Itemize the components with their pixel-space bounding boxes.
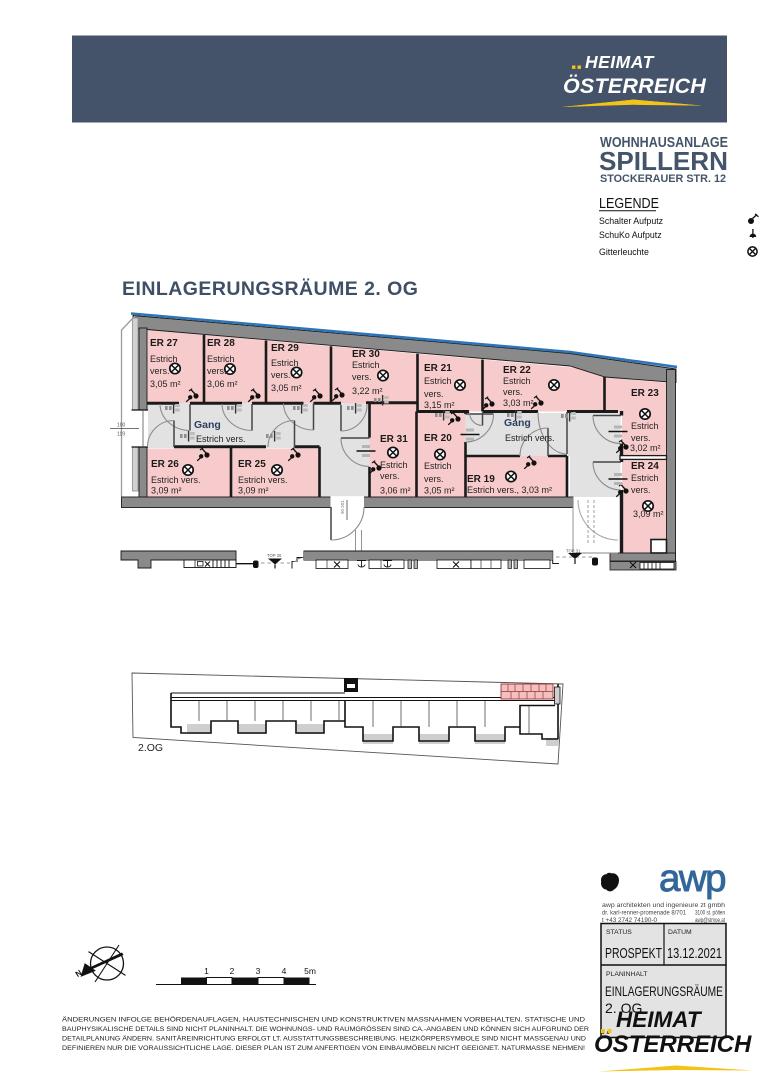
svg-text:Estrich: Estrich (271, 358, 299, 368)
svg-text:2.OG: 2.OG (138, 742, 163, 754)
svg-text:Gitterleuchte: Gitterleuchte (599, 247, 649, 257)
svg-text:ER 27: ER 27 (150, 338, 178, 349)
svg-text:vers.: vers. (503, 387, 523, 397)
svg-text:ER 30: ER 30 (352, 349, 380, 360)
svg-text:Gang: Gang (504, 417, 531, 429)
svg-text:vers.: vers. (631, 485, 651, 495)
svg-text:ER 19: ER 19 (467, 474, 495, 485)
svg-text:Estrich: Estrich (503, 376, 531, 386)
svg-text:DETAILPLANUNG ÄNDERN. SANITÄRE: DETAILPLANUNG ÄNDERN. SANITÄREINRICHTUNG… (62, 1035, 586, 1043)
svg-text:ER 29: ER 29 (271, 343, 299, 354)
svg-text:vers.: vers. (424, 389, 444, 399)
svg-text:EINLAGERUNGSRÄUME 2. OG: EINLAGERUNGSRÄUME 2. OG (122, 277, 418, 300)
svg-text:vers.: vers. (150, 366, 170, 376)
svg-text:BAUPHYSIKALISCHE DETAILS SIND: BAUPHYSIKALISCHE DETAILS SIND NICHT PLAN… (62, 1025, 589, 1033)
svg-text:ER 23: ER 23 (631, 388, 659, 399)
svg-text:vers.: vers. (207, 366, 227, 376)
svg-text:ÄNDERUNGEN INFOLGE BEHÖRDENAUF: ÄNDERUNGEN INFOLGE BEHÖRDENAUFLAGEN, HAU… (62, 1016, 585, 1024)
svg-text:ER 25: ER 25 (238, 459, 266, 470)
svg-text:HEIMAT: HEIMAT (616, 1007, 703, 1032)
svg-text:3,05 m²: 3,05 m² (271, 383, 302, 393)
svg-text:SPILLERN: SPILLERN (599, 146, 728, 176)
svg-text:3,06 m²: 3,06 m² (207, 379, 238, 389)
svg-text:STATUS: STATUS (606, 929, 632, 936)
svg-text:dr. karl-renner-promenade 8/70: dr. karl-renner-promenade 8/701 (602, 910, 687, 917)
svg-text:Estrich vers.: Estrich vers. (505, 433, 555, 443)
svg-text:90 201: 90 201 (340, 500, 345, 514)
svg-text:ER 28: ER 28 (207, 338, 235, 349)
svg-text:1: 1 (204, 966, 209, 976)
svg-text:3,06 m²: 3,06 m² (380, 486, 411, 496)
svg-text:3,09 m²: 3,09 m² (238, 486, 269, 496)
svg-text:3,15 m²: 3,15 m² (424, 400, 455, 410)
svg-text:ÖSTERREICH: ÖSTERREICH (594, 1031, 752, 1058)
svg-text:ER 31: ER 31 (380, 434, 408, 445)
svg-text:Estrich: Estrich (150, 354, 178, 364)
svg-text:ER 21: ER 21 (424, 363, 452, 374)
svg-text:LEGENDE: LEGENDE (599, 196, 659, 212)
svg-text:Estrich: Estrich (631, 473, 659, 483)
svg-text:HEIMAT: HEIMAT (585, 52, 655, 72)
svg-text:ER 26: ER 26 (151, 459, 179, 470)
svg-text:100: 100 (117, 423, 126, 429)
svg-text:vers.: vers. (424, 474, 444, 484)
svg-text:3,09 m²: 3,09 m² (151, 486, 182, 496)
svg-text:3,03 m²: 3,03 m² (503, 398, 534, 408)
svg-text:SchuKo Aufputz: SchuKo Aufputz (599, 230, 662, 240)
svg-text:PROSPEKT: PROSPEKT (605, 945, 662, 962)
svg-text:TOP 31: TOP 31 (566, 549, 581, 554)
svg-text:EINLAGERUNGSRÄUME: EINLAGERUNGSRÄUME (605, 983, 723, 999)
svg-text:3,02 m²: 3,02 m² (630, 443, 661, 453)
svg-text:Estrich: Estrich (631, 421, 659, 431)
svg-text:vers.: vers. (352, 372, 372, 382)
svg-text:Estrich: Estrich (352, 360, 380, 370)
svg-text:Estrich vers., 3,03 m²: Estrich vers., 3,03 m² (467, 485, 552, 495)
svg-text:2: 2 (230, 966, 235, 976)
svg-text:3100 st. pölten: 3100 st. pölten (695, 910, 725, 917)
svg-text:Estrich vers.: Estrich vers. (196, 434, 246, 444)
svg-text:5m: 5m (304, 966, 316, 976)
svg-text:Schalter Aufputz: Schalter Aufputz (599, 216, 663, 226)
svg-text:Estrich vers.: Estrich vers. (238, 475, 288, 485)
svg-text:13.12.2021: 13.12.2021 (667, 945, 722, 962)
svg-text:ER 22: ER 22 (503, 365, 531, 376)
svg-text:DEFINIEREN NUR DIE VORAUSSICHT: DEFINIEREN NUR DIE VORAUSSICHTLICHE LAGE… (62, 1044, 585, 1052)
svg-text:TOP 30: TOP 30 (267, 553, 282, 558)
svg-text:awp architekten und ingenieure: awp architekten und ingenieure zt gmbh (602, 902, 726, 909)
svg-text:3,05 m²: 3,05 m² (150, 379, 181, 389)
svg-text:vers.: vers. (631, 433, 651, 443)
svg-text:3,22 m²: 3,22 m² (352, 386, 383, 396)
svg-text:119: 119 (117, 432, 125, 438)
svg-text:Estrich: Estrich (424, 376, 452, 386)
svg-text:Estrich: Estrich (207, 354, 235, 364)
svg-text:DATUM: DATUM (668, 929, 692, 936)
svg-text:3,05 m²: 3,05 m² (424, 486, 455, 496)
svg-text:Estrich: Estrich (380, 460, 408, 470)
svg-text:Gang: Gang (194, 419, 221, 431)
svg-text:STOCKERAUER STR. 12: STOCKERAUER STR. 12 (600, 173, 726, 185)
svg-text:ER 24: ER 24 (631, 461, 659, 472)
svg-text:Estrich: Estrich (424, 461, 452, 471)
svg-text:vers.: vers. (380, 471, 400, 481)
svg-text:awp: awp (659, 858, 725, 900)
svg-text:ÖSTERREICH: ÖSTERREICH (563, 73, 706, 98)
svg-text:ER 20: ER 20 (424, 433, 452, 444)
svg-text:PLANINHALT: PLANINHALT (606, 971, 647, 978)
svg-text:3,09 m²: 3,09 m² (633, 509, 664, 519)
svg-text:3: 3 (256, 966, 261, 976)
svg-text:Estrich vers.: Estrich vers. (151, 475, 201, 485)
svg-text:4: 4 (282, 966, 287, 976)
svg-text:vers.: vers. (271, 370, 291, 380)
